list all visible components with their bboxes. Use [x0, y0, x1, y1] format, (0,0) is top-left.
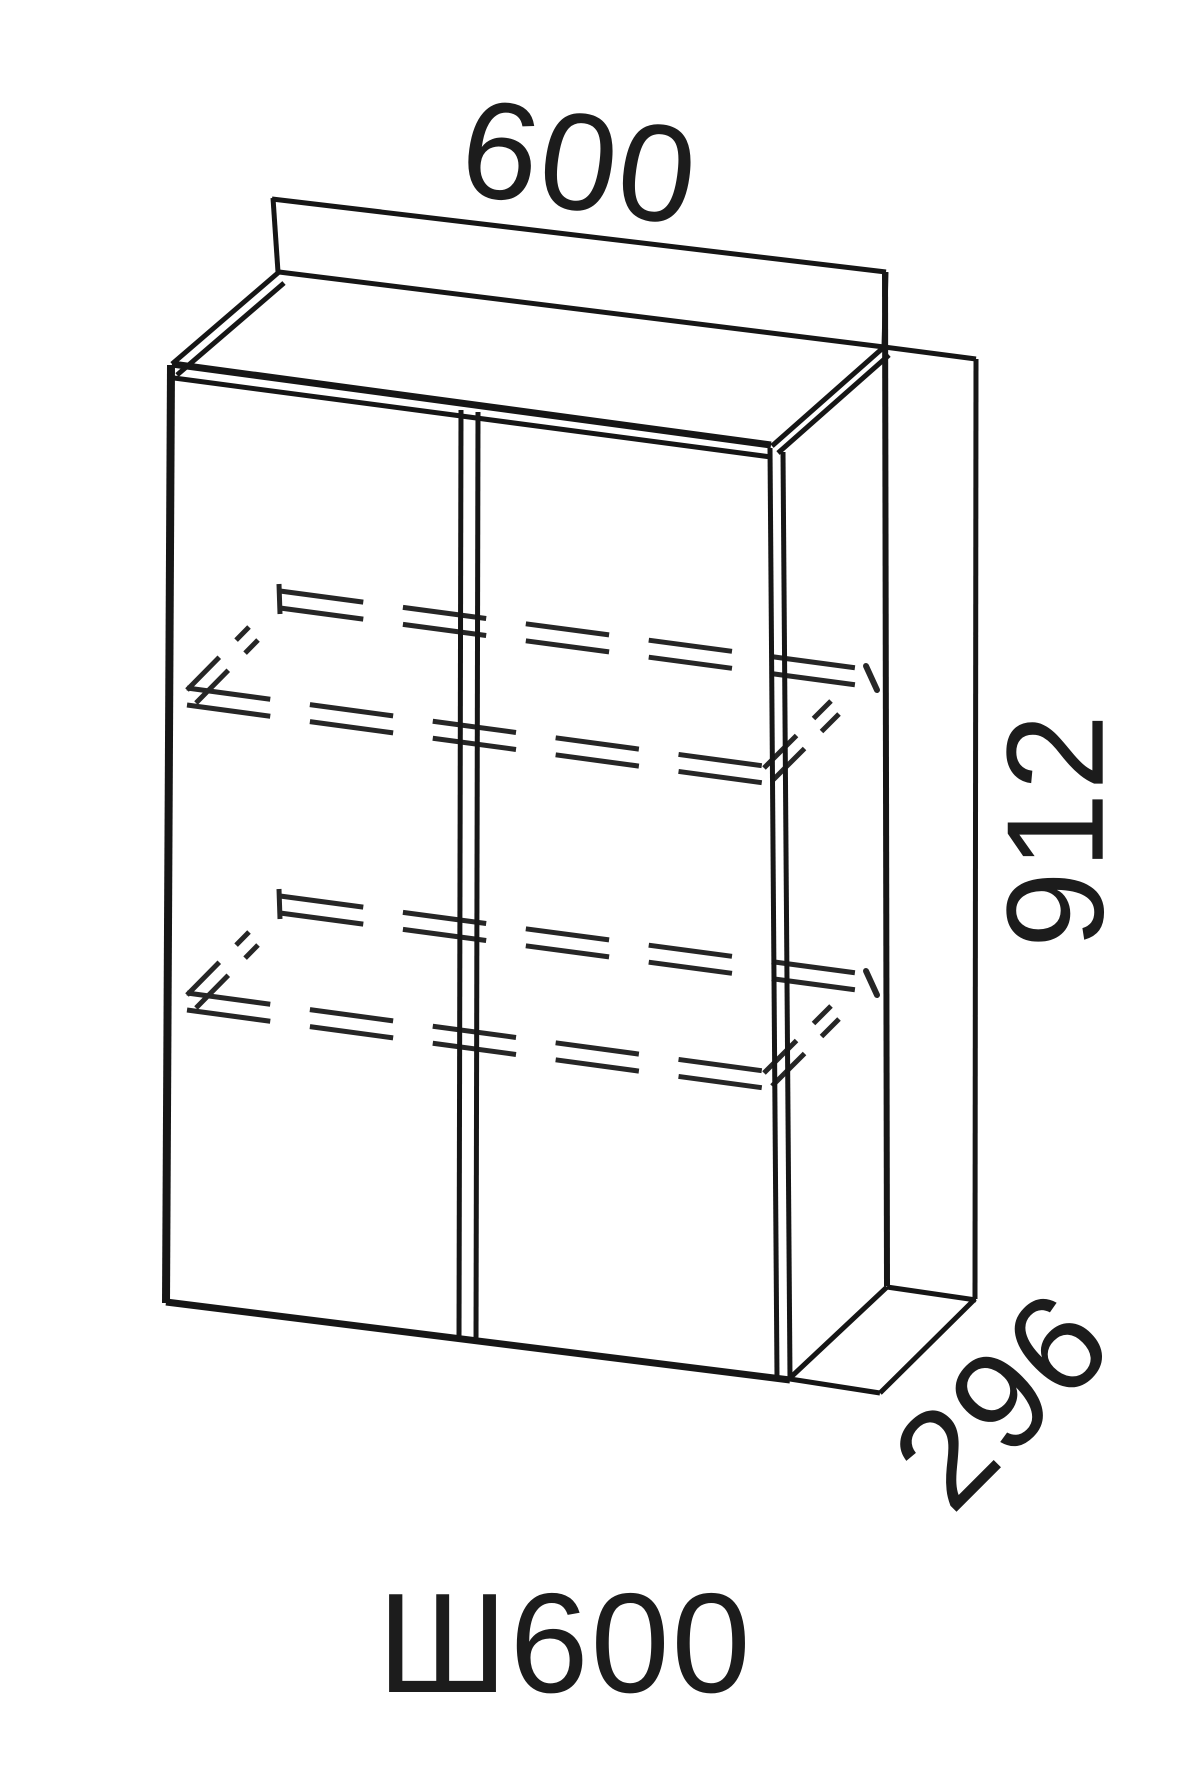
height-extension-bottom [887, 1287, 976, 1300]
technical-drawing-page: 600 912 296 Ш600 [0, 0, 1200, 1771]
top-panel-front-edge [172, 364, 771, 445]
door-gap-left-line [459, 410, 461, 1341]
dimension-width: 600 [272, 70, 886, 347]
cabinet-front-face [166, 364, 790, 1380]
depth-dimension-label: 296 [864, 1262, 1140, 1538]
dimension-height: 912 [884, 347, 1133, 1300]
height-extension-top [884, 347, 976, 359]
doors-top-edge [174, 378, 771, 457]
right-edge [783, 452, 790, 1379]
cabinet-side-face [790, 272, 887, 1378]
width-extension-left [273, 198, 278, 272]
dimension-depth: 296 [790, 1262, 1140, 1538]
left-edge [166, 365, 171, 1303]
door-gap-right-line [476, 412, 478, 1343]
product-code-label: Ш600 [377, 1564, 752, 1723]
height-dimension-line [975, 359, 976, 1299]
width-extension-right [884, 272, 886, 347]
width-dimension-label: 600 [452, 70, 707, 255]
right-door-edge [770, 448, 777, 1377]
height-dimension-label: 912 [979, 712, 1133, 948]
cabinet-technical-drawing: 600 912 296 Ш600 [0, 0, 1200, 1771]
depth-extension-front [790, 1379, 880, 1393]
